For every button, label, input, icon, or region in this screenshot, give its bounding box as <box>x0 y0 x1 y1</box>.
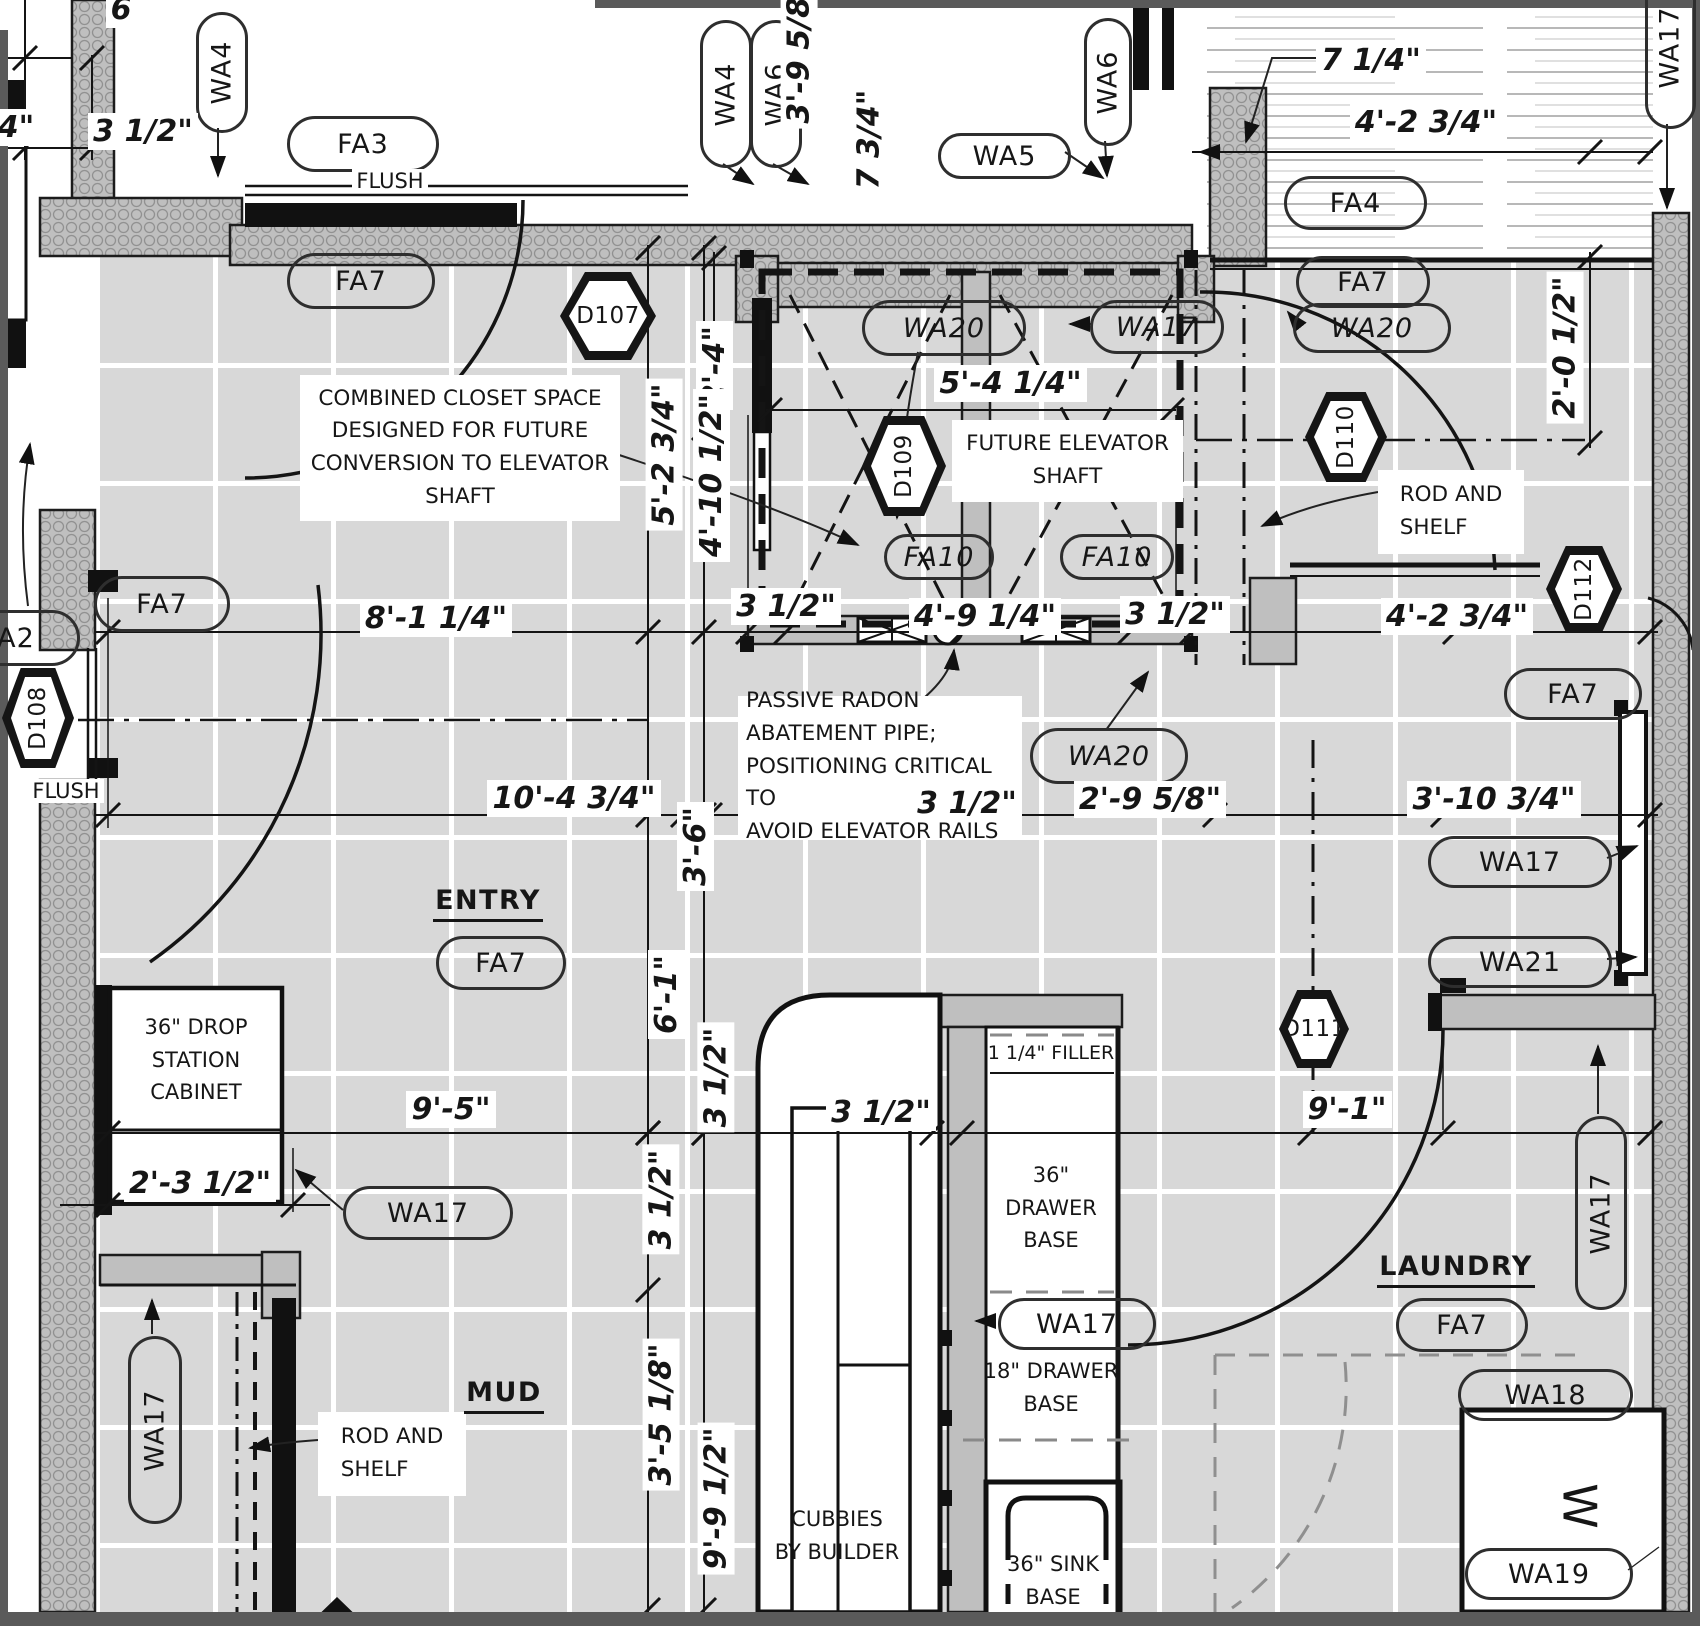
door-tag-d112-face: D112 <box>1555 555 1613 623</box>
dim-9-5-label: 9'-5" <box>406 1091 495 1128</box>
dim-8-1-1-4: 8'-1 1/4" <box>368 598 504 638</box>
dim-4-9-1-4: 4'-9 1/4" <box>916 596 1054 636</box>
floor-tag-fa3: FA3 <box>287 116 439 172</box>
dim-4-2-3-4-right: 4'-2 3/4" <box>1386 596 1528 636</box>
dim-8-1-1-4-label: 8'-1 1/4" <box>360 600 512 637</box>
wall-tag-wa4-mid-label: WA4 <box>711 62 742 126</box>
room-label-entry-label: ENTRY <box>433 885 543 922</box>
floor-tag-fa4-label: FA4 <box>1330 188 1382 219</box>
floor-tag-fa10-left-label: FA10 <box>904 542 975 573</box>
wall-tag-wa20-right-label: WA20 <box>1331 313 1413 344</box>
dim-3half-center-label: 3 1/2" <box>912 785 1022 822</box>
dim-5-4-1-4: 5'-4 1/4" <box>938 362 1083 404</box>
dim-7-3-4-label: 7 3/4" <box>851 85 888 195</box>
flush-note-top: FLUSH <box>347 168 433 194</box>
dim-5-4-1-4-label: 5'-4 1/4" <box>934 365 1086 402</box>
dim-4-9-1-4-label: 4'-9 1/4" <box>909 598 1061 635</box>
wall-tag-wa17-shaft-label: WA17 <box>1116 312 1198 343</box>
dim-7-1-4: 7 1/4" <box>1320 40 1422 80</box>
dim-3-6-label: 3'-6" <box>677 801 714 890</box>
dim-9-1-label: 9'-1" <box>1303 1091 1392 1128</box>
dim-3half-topleft: 3 1/2" <box>98 112 188 150</box>
flush-note-left: FLUSH <box>24 778 108 804</box>
dim-3half-v1-label: 3 1/2" <box>698 1022 735 1132</box>
dim-4-2-3-4-top: 4'-2 3/4" <box>1358 102 1494 142</box>
door-tag-d109-label: D109 <box>891 434 917 498</box>
dim-5-2-3-4-label: 5'-2 3/4" <box>646 378 683 530</box>
floor-tag-fa10-right-label: FA10 <box>1082 542 1153 573</box>
dim-4in-topleft-label: 4" <box>0 109 39 146</box>
door-tag-d112-label: D112 <box>1571 557 1597 621</box>
dim-6-1: 6'-1" <box>646 944 686 1044</box>
sink-base-label-label: 36" SINK BASE <box>1007 1548 1099 1613</box>
room-label-mud: MUD <box>458 1378 550 1412</box>
wall-tag-wa6-right-label: WA6 <box>1093 50 1124 114</box>
dim-4-2-3-4-right-label: 4'-2 3/4" <box>1381 598 1533 635</box>
rod-shelf-note-right-label: ROD AND SHELF <box>1400 479 1503 544</box>
dim-3half-shaftleft: 3 1/2" <box>736 586 836 626</box>
room-label-laundry-label: LAUNDRY <box>1377 1251 1535 1288</box>
filler-label-label: 1 1/4" FILLER <box>988 1039 1114 1068</box>
wall-tag-wa17-topright: WA17 <box>1645 0 1696 129</box>
room-label-laundry: LAUNDRY <box>1396 1252 1516 1286</box>
dim-3half-v2: 3 1/2" <box>643 1143 679 1255</box>
wall-tag-wa4-mid: WA4 <box>700 20 752 168</box>
door-tag-d107-label: D107 <box>576 303 640 329</box>
dim-10-4-3-4: 10'-4 3/4" <box>496 778 652 818</box>
floor-tag-fa10-left: FA10 <box>884 534 994 580</box>
wall-tag-wa17-mudcloset: WA17 <box>128 1336 182 1524</box>
wall-tag-wa21-label: WA21 <box>1479 947 1561 978</box>
dim-3half-topleft-label: 3 1/2" <box>88 113 198 150</box>
dim-2-0-1-2: 2'-0 1/2" <box>1546 282 1584 412</box>
wall-tag-wa20-below-label: WA20 <box>1068 741 1150 772</box>
floor-tag-fa7-d112-label: FA7 <box>1547 679 1599 710</box>
floor-tag-fa7-closet: FA7 <box>287 253 435 309</box>
wall-tag-wa17-rightedge: WA17 <box>1575 1116 1627 1310</box>
drawer-base-36-label-label: 36" DRAWER BASE <box>1005 1159 1097 1257</box>
wall-tag-wa20-below: WA20 <box>1030 728 1188 784</box>
wall-tag-wa18-label: WA18 <box>1504 1380 1586 1411</box>
future-elevator-note-label: FUTURE ELEVATOR SHAFT <box>966 428 1169 493</box>
dim-2-3-1-2-label: 2'-3 1/2" <box>124 1165 276 1202</box>
filler-label: 1 1/4" FILLER <box>984 1040 1118 1068</box>
dim-10-4-3-4-label: 10'-4 3/4" <box>487 780 660 817</box>
wall-tag-wa20-shaft-label: WA20 <box>903 313 985 344</box>
dim-3half-shaftright: 3 1/2" <box>1126 594 1224 634</box>
dim-3-5-1-8: 3'-5 1/8" <box>641 1336 681 1492</box>
cubbies-label-label: CUBBIES BY BUILDER <box>775 1503 899 1568</box>
room-label-mud-label: MUD <box>464 1377 544 1414</box>
dim-3-9-5-8: 3'-9 5/8" <box>780 0 818 122</box>
door-tag-d111-face: D111 <box>1288 999 1340 1059</box>
dim-9-5: 9'-5" <box>406 1090 496 1128</box>
dim-5-2-3-4: 5'-2 3/4" <box>644 372 684 537</box>
wall-tag-wa5: WA5 <box>938 133 1071 179</box>
rod-shelf-note-left: ROD AND SHELF <box>318 1412 466 1496</box>
floor-tag-fa10-right: FA10 <box>1060 534 1174 580</box>
dim-2-9-5-8: 2'-9 5/8" <box>1086 780 1214 818</box>
combined-closet-note-label: COMBINED CLOSET SPACE DESIGNED FOR FUTUR… <box>311 383 609 514</box>
washer-letter-label: W <box>1553 1483 1607 1528</box>
rod-shelf-note-left-label: ROD AND SHELF <box>341 1421 444 1486</box>
wall-tag-wa5-label: WA5 <box>973 141 1037 172</box>
washer-letter: W <box>1552 1478 1608 1534</box>
floor-tag-fa7-entry-label: FA7 <box>475 948 527 979</box>
floor-tag-fa4: FA4 <box>1284 176 1427 230</box>
dim-3-5-1-8-label: 3'-5 1/8" <box>643 1338 680 1490</box>
wall-tag-wa17-dropstation: WA17 <box>343 1186 513 1240</box>
dim-2-3-1-2: 2'-3 1/2" <box>130 1163 270 1203</box>
dim-3half-cap: 3 1/2" <box>833 1093 929 1131</box>
dim-7-3-4: 7 3/4" <box>850 82 888 197</box>
drawer-base-36-label: 36" DRAWER BASE <box>990 1158 1112 1258</box>
combined-closet-note: COMBINED CLOSET SPACE DESIGNED FOR FUTUR… <box>300 375 620 521</box>
wall-tag-wa17-laundrywall-label: WA17 <box>1479 847 1561 878</box>
wall-tag-wa17-shaft: WA17 <box>1090 300 1224 354</box>
flush-note-top-label: FLUSH <box>352 169 427 193</box>
wall-tag-a2: A2 <box>0 610 80 666</box>
sink-base-label: 36" SINK BASE <box>990 1550 1116 1612</box>
dim-4-10-1-2: 4'-10 1/2" <box>692 385 732 565</box>
wall-tag-wa17-mudcloset-label: WA17 <box>140 1389 171 1471</box>
floor-tag-fa7-right: FA7 <box>1296 256 1430 308</box>
drawer-base-18-label: 18" DRAWER BASE <box>980 1356 1122 1420</box>
wall-tag-wa17-cabinet-label: WA17 <box>1036 1309 1118 1340</box>
floor-tag-fa7-closet-label: FA7 <box>335 266 387 297</box>
floor-tag-fa7-entry-left: FA7 <box>94 576 230 632</box>
dim-2-9-5-8-label: 2'-9 5/8" <box>1074 781 1226 818</box>
door-tag-d107-face: D107 <box>569 281 647 351</box>
dim-6-topleft: 6 <box>108 0 134 24</box>
dim-3half-v2-label: 3 1/2" <box>643 1144 680 1254</box>
door-tag-d108-face: D108 <box>11 677 65 759</box>
dim-3half-center: 3 1/2" <box>918 783 1016 823</box>
wall-tag-wa17-laundrywall: WA17 <box>1428 836 1612 888</box>
dim-7-1-4-label: 7 1/4" <box>1316 42 1426 79</box>
floor-tag-fa7-entry-left-label: FA7 <box>136 589 188 620</box>
floor-plan-canvas: WA4FA3FLUSHWA4WA6WA5WA6WA17FA4FA7D107FA7… <box>0 0 1700 1626</box>
door-tag-d110-label: D110 <box>1333 405 1359 469</box>
dim-9-1: 9'-1" <box>1303 1090 1391 1128</box>
dim-3-6: 3'-6" <box>676 796 714 896</box>
wall-tag-wa4-left-label: WA4 <box>207 41 238 105</box>
wall-tag-wa6-right: WA6 <box>1084 18 1132 146</box>
drop-station-label-label: 36" DROP STATION CABINET <box>144 1011 247 1109</box>
wall-tag-wa17-cabinet: WA17 <box>998 1298 1156 1350</box>
dim-9-9-1-2: 9'-9 1/2" <box>696 1420 736 1576</box>
radon-note-label: PASSIVE RADON ABATEMENT PIPE; POSITIONIN… <box>746 685 1014 848</box>
drop-station-label: 36" DROP STATION CABINET <box>112 1008 280 1112</box>
wall-tag-wa19-label: WA19 <box>1508 1559 1590 1590</box>
flush-note-left-label: FLUSH <box>28 779 103 803</box>
wall-tag-wa18: WA18 <box>1458 1369 1633 1421</box>
wall-tag-wa20-shaft: WA20 <box>862 300 1026 356</box>
dim-6-topleft-label: 6 <box>106 0 137 28</box>
floor-tag-fa3-label: FA3 <box>337 129 389 160</box>
dim-4in-topleft: 4" <box>0 108 38 146</box>
dim-4-2-3-4-top-label: 4'-2 3/4" <box>1350 104 1502 141</box>
dim-3-9-5-8-label: 3'-9 5/8" <box>781 0 818 128</box>
door-tag-d111-label: D111 <box>1282 1016 1346 1042</box>
door-tag-d109-face: D109 <box>871 425 937 507</box>
dim-6-1-label: 6'-1" <box>648 949 685 1038</box>
floor-tag-fa7-laundry: FA7 <box>1396 1298 1528 1352</box>
wall-tag-wa17-rightedge-label: WA17 <box>1586 1172 1617 1254</box>
dim-3half-v1: 3 1/2" <box>698 1024 734 1130</box>
room-label-entry: ENTRY <box>438 886 538 920</box>
wall-tag-wa17-topright-label: WA17 <box>1655 6 1686 88</box>
wall-tag-a2-label: A2 <box>0 623 35 654</box>
door-tag-d108-label: D108 <box>25 686 51 750</box>
floor-tag-fa7-d112: FA7 <box>1504 668 1642 720</box>
dim-3half-shaftright-label: 3 1/2" <box>1120 596 1230 633</box>
future-elevator-note: FUTURE ELEVATOR SHAFT <box>952 420 1183 502</box>
dim-4-10-1-2-label: 4'-10 1/2" <box>694 388 731 561</box>
drawer-base-18-label-label: 18" DRAWER BASE <box>984 1355 1119 1420</box>
floor-tag-fa7-entry: FA7 <box>436 936 566 990</box>
wall-tag-wa17-dropstation-label: WA17 <box>387 1198 469 1229</box>
dim-3-10-3-4-label: 3'-10 3/4" <box>1407 781 1580 818</box>
wall-tag-wa20-right: WA20 <box>1293 303 1451 353</box>
dim-3half-cap-label: 3 1/2" <box>826 1094 936 1131</box>
door-tag-d110-face: D110 <box>1314 401 1378 473</box>
dim-3-10-3-4: 3'-10 3/4" <box>1416 780 1572 818</box>
cubbies-label: CUBBIES BY BUILDER <box>772 1502 902 1570</box>
floor-tag-fa7-laundry-label: FA7 <box>1436 1310 1488 1341</box>
wall-tag-wa21: WA21 <box>1428 936 1612 988</box>
dim-2-0-1-2-label: 2'-0 1/2" <box>1547 271 1584 423</box>
dim-9-9-1-2-label: 9'-9 1/2" <box>698 1422 735 1574</box>
wall-tag-wa19: WA19 <box>1465 1548 1633 1600</box>
dim-3half-shaftleft-label: 3 1/2" <box>731 588 841 625</box>
floor-tag-fa7-right-label: FA7 <box>1337 267 1389 298</box>
wall-tag-wa4-left: WA4 <box>196 12 248 133</box>
rod-shelf-note-right: ROD AND SHELF <box>1378 470 1524 554</box>
